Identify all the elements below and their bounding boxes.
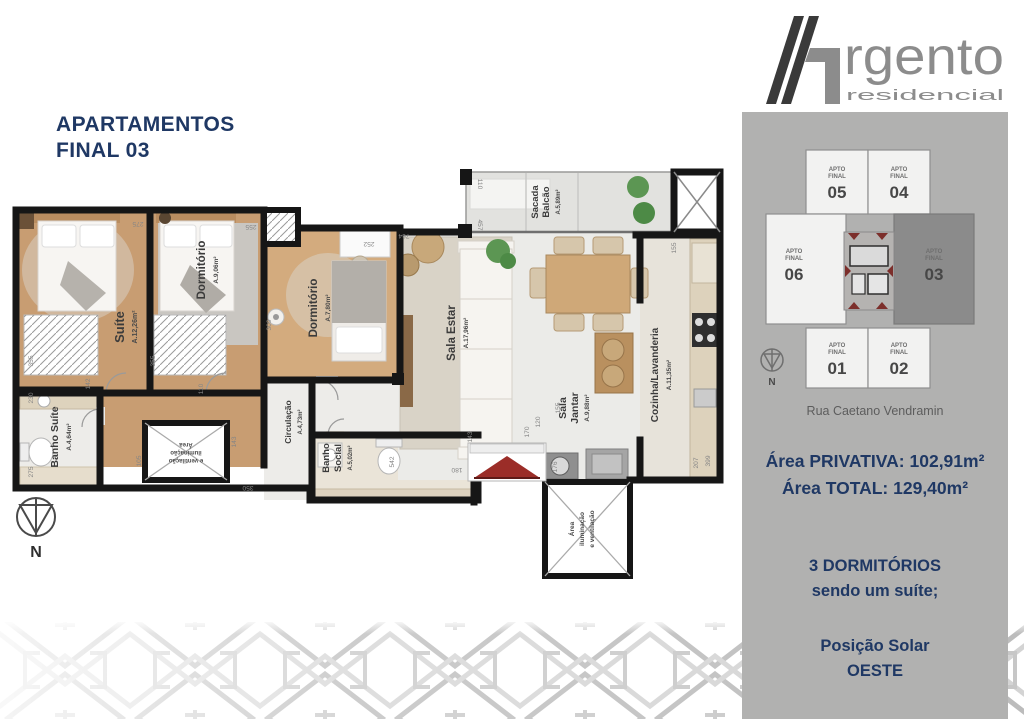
room-label-hallway: Circulação — [283, 400, 293, 443]
page-title-line2: FINAL 03 — [56, 138, 235, 164]
room-label-bedroom2: Dormitório — [196, 241, 208, 300]
room-area-bedroom3: A.7,80m² — [325, 294, 332, 322]
room-label-balcony: Balcão — [541, 186, 552, 217]
room-label-suite-bath: Banho Suíte — [49, 406, 61, 467]
keyplan-apto-label: APTO — [926, 249, 943, 255]
elevator-shaft — [674, 172, 720, 232]
keyplan-compass-label: N — [768, 377, 775, 388]
dorms-line2: sendo um suíte; — [742, 579, 1008, 604]
area-info: Área PRIVATIVA: 102,91m² Área TOTAL: 129… — [742, 448, 1008, 502]
sink-icon — [694, 389, 716, 407]
dimension-label: 252 — [363, 240, 374, 247]
dimension-label: 120 — [535, 416, 542, 427]
dimension-label: 350 — [242, 484, 253, 491]
bedroom2-furniture — [154, 212, 236, 375]
plant-icon — [500, 253, 516, 269]
dorms-info: 3 DORMITÓRIOS sendo um suíte; — [742, 554, 1008, 604]
room-label-kitchen: Cozinha/Lavanderia — [650, 327, 661, 422]
keyplan-final-label: FINAL — [890, 350, 908, 356]
room-area-social-bath: A.5,02m² — [347, 445, 354, 470]
room-label-balcony: Sacada — [530, 185, 541, 219]
room-label-lightwell: e ventilação — [589, 510, 596, 547]
logo-brand-text: rgento — [844, 28, 1004, 86]
apartment-floorplan: Área iluminação e ventilação Área ilumin… — [8, 165, 728, 625]
room-label-living: Sala Estar — [446, 305, 458, 361]
solar-line1: Posição Solar — [742, 634, 1008, 659]
plant-icon — [627, 176, 649, 198]
room-label-lightwell: iluminação — [579, 512, 586, 546]
floorplan-brochure: APARTAMENTOS FINAL 03 rgento residencial — [0, 0, 1024, 719]
solar-info: Posição Solar OESTE — [742, 634, 1008, 684]
dimension-label: 170 — [524, 426, 531, 437]
plan-compass-icon — [17, 498, 55, 536]
dimension-label: 110 — [476, 179, 483, 190]
plan-compass-label: N — [30, 544, 42, 561]
dimension-label: 457 — [476, 219, 483, 230]
logo-a-icon — [766, 16, 840, 104]
dimension-label: 142 — [85, 378, 92, 389]
keyplan-apto-label: APTO — [786, 249, 803, 255]
room-area-suite-bath: A.4,64m² — [66, 423, 73, 451]
room-area-dining: A.9,88m² — [584, 394, 591, 422]
page-title: APARTAMENTOS FINAL 03 — [56, 112, 235, 164]
building-keyplan: APTO FINAL 05 APTO FINAL 04 APTO FINAL 0… — [756, 146, 988, 408]
keyplan-unit-01: 01 — [828, 359, 847, 378]
keyplan-final-label: FINAL — [828, 350, 846, 356]
solar-line2: OESTE — [742, 659, 1008, 684]
dimension-label: 542 — [389, 456, 396, 467]
dimension-label: 275 — [28, 466, 35, 477]
light-well-2: Área iluminação e ventilação — [545, 482, 630, 576]
room-label-bedroom3: Dormitório — [308, 279, 320, 338]
room-label-social-bath: Banho — [321, 443, 332, 473]
keyplan-apto-label: APTO — [891, 343, 908, 349]
dimension-label: 207 — [693, 457, 700, 468]
room-label-social-bath: Social — [333, 444, 344, 472]
dimension-label: 105 — [136, 455, 143, 466]
dimension-label: 180 — [451, 466, 462, 473]
room-area-suite: A.12,26m² — [132, 310, 139, 344]
dimension-label: 275 — [132, 220, 143, 227]
dimension-label: 143 — [231, 436, 238, 447]
light-well-1: Área iluminação e ventilação — [145, 423, 227, 480]
dimension-label: 309 — [266, 319, 273, 330]
keyplan-compass-icon — [761, 349, 783, 371]
stove-icon — [692, 313, 718, 347]
keyplan-apto-label: APTO — [891, 167, 908, 173]
keyplan-unit-03: 03 — [925, 265, 944, 284]
room-label-suite: Suíte — [112, 311, 127, 343]
dimension-label: 399 — [705, 455, 712, 466]
plant-icon — [633, 202, 655, 224]
room-label-dining: Jantar — [569, 392, 581, 424]
room-label-lightwell: Área — [179, 441, 193, 448]
room-area-balcony: A.5,89m² — [555, 189, 562, 214]
room-area-living: A.17,96m² — [463, 317, 470, 349]
room-label-lightwell: Área — [567, 521, 576, 536]
keyplan-final-label: FINAL — [828, 174, 846, 180]
entrance — [468, 443, 546, 481]
street-name: Rua Caetano Vendramin — [742, 404, 1008, 418]
keyplan-unit-05: 05 — [828, 183, 847, 202]
info-sidebar: APTO FINAL 05 APTO FINAL 04 APTO FINAL 0… — [742, 112, 1008, 719]
dimension-label: 255 — [245, 223, 256, 230]
keyplan-unit-02: 02 — [890, 359, 909, 378]
dimension-label: 355 — [28, 355, 35, 366]
area-privativa: Área PRIVATIVA: 102,91m² — [742, 448, 1008, 475]
dimension-label: 110 — [198, 383, 205, 394]
room-label-lightwell: e ventilação — [168, 457, 203, 463]
keyplan-apto-label: APTO — [829, 167, 846, 173]
room-label-lightwell: iluminação — [170, 449, 202, 455]
logo-sub-text: residencial — [846, 87, 1004, 104]
dimension-label: 155 — [671, 242, 678, 253]
brand-logo: rgento residencial — [758, 10, 1010, 108]
dimension-label: 143 — [467, 431, 474, 442]
keyplan-unit-04: 04 — [890, 183, 909, 202]
keyplan-final-label: FINAL — [925, 256, 943, 262]
dimension-label: 176 — [552, 461, 559, 472]
room-area-kitchen: A.11,35m² — [666, 359, 673, 390]
area-total: Área TOTAL: 129,40m² — [742, 475, 1008, 502]
page-title-line1: APARTAMENTOS — [56, 112, 235, 138]
keyplan-apto-label: APTO — [829, 343, 846, 349]
keyplan-final-label: FINAL — [890, 174, 908, 180]
dorms-line1: 3 DORMITÓRIOS — [742, 554, 1008, 579]
dimension-label: 355 — [150, 355, 157, 366]
room-area-hallway: A.4,73m² — [297, 409, 304, 434]
ventilation-shaft — [264, 210, 298, 244]
keyplan-unit-06: 06 — [785, 265, 804, 284]
dimension-label: 155 — [555, 402, 562, 413]
keyplan-final-label: FINAL — [785, 256, 803, 262]
dimension-label: 764 — [398, 232, 409, 239]
dimension-label: 230 — [28, 392, 35, 403]
room-area-bedroom2: A.9,06m² — [213, 256, 220, 284]
